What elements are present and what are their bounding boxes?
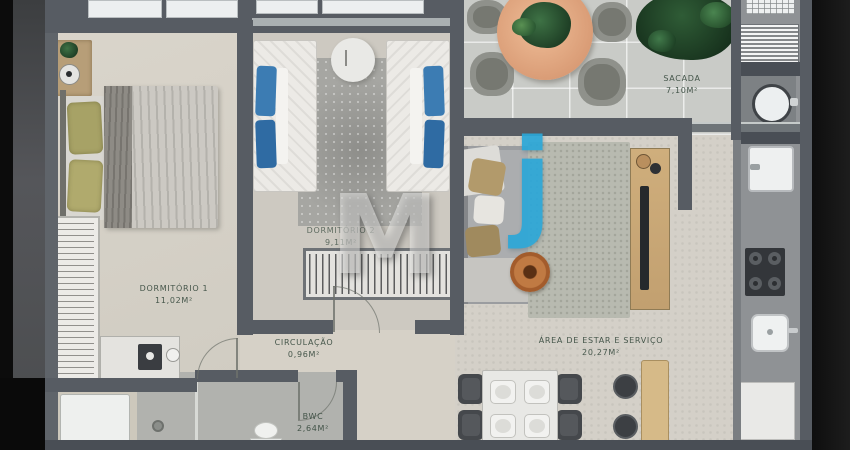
- burner-2: [768, 252, 781, 265]
- wall-dorm2-living: [450, 0, 464, 335]
- burner-4: [768, 277, 781, 290]
- bed-throw: [104, 86, 132, 228]
- room-name-estar-servico: ÁREA DE ESTAR E SERVIÇO: [539, 336, 664, 347]
- twin-left-pillow-blue-1: [255, 66, 277, 117]
- wall-balcony-service: [731, 0, 741, 140]
- room-area-estar-servico: 20,27m²: [582, 348, 620, 359]
- table-plant-leaf: [512, 18, 536, 36]
- place-setting-1: [490, 380, 516, 404]
- closet-dorm1-hangers: [56, 222, 94, 374]
- counter-edge-service: [733, 140, 741, 443]
- pillow-olive-2: [67, 159, 104, 213]
- room-area-dormitorio1: 11,02m²: [155, 296, 193, 307]
- nightstand-lamp-center: [66, 71, 72, 77]
- bench-wood: [641, 360, 669, 444]
- watermark-m-letter: M: [330, 180, 439, 290]
- wall-balcony-living: [455, 118, 690, 136]
- washing-machine-drum-icon: [752, 84, 792, 124]
- window-dorm2-a: [256, 0, 318, 14]
- burner-3: [749, 277, 762, 290]
- dining-chair-4: [556, 410, 582, 440]
- wall-dorm1-bottom: [45, 378, 197, 392]
- dining-chair-3: [556, 374, 582, 404]
- room-name-sacada: SACADA: [663, 74, 700, 85]
- big-plant-leaf-1: [700, 2, 734, 28]
- frame-black-corner: [0, 378, 45, 450]
- sofa-pillow-tan-2: [465, 224, 502, 257]
- room-name-bwc: BWC: [303, 412, 324, 423]
- side-table-rattan: [510, 252, 550, 292]
- twin-right-pillow-strip: [410, 68, 422, 164]
- watermark-j-letter: j: [512, 118, 552, 248]
- room-name-circulacao: CIRCULAÇÃO: [275, 338, 334, 349]
- big-plant-leaf-2: [648, 30, 676, 52]
- twin-left-pillow-blue-2: [255, 120, 277, 169]
- wall-dorm1-dorm2: [237, 20, 253, 335]
- sliding-door-balcony: [690, 122, 800, 132]
- room-label-dormitorio1: DORMITÓRIO 1 11,02m²: [140, 284, 209, 307]
- room-label-circulacao: CIRCULAÇÃO 0,96m²: [275, 338, 334, 361]
- entry-door-leaf: [60, 394, 130, 446]
- room-label-bwc: BWC 2,64m²: [297, 412, 329, 435]
- kitchen-counter-block: [739, 382, 795, 440]
- wall-pillar-living: [678, 118, 692, 210]
- wall-dorm2-hall-b: [415, 320, 453, 334]
- frame-black-right: [812, 0, 850, 450]
- tank-faucet-icon: [750, 164, 760, 170]
- console-vase-2: [650, 163, 661, 174]
- sofa-pillow-tan-1: [467, 157, 506, 196]
- wall-dorm2-hall-a: [253, 320, 333, 334]
- dresser-vase: [166, 348, 180, 362]
- place-setting-2: [524, 380, 550, 404]
- stool-1: [613, 374, 638, 399]
- door-leaf-dorm1: [236, 338, 238, 378]
- pillow-olive-1: [67, 101, 104, 155]
- room-name-dormitorio1: DORMITÓRIO 1: [140, 284, 209, 295]
- dining-chair-2: [458, 410, 484, 440]
- tv-icon: [640, 186, 649, 290]
- toilet-bowl-icon: [254, 422, 278, 439]
- twin-left-pillow-strip: [276, 68, 288, 164]
- room-area-sacada: 7,10m²: [666, 86, 698, 97]
- wall-bottom: [45, 440, 812, 450]
- window-dorm2-b: [322, 0, 424, 14]
- window-sill-dorm2: [252, 18, 452, 26]
- console-vase-1: [636, 154, 651, 169]
- round-table-mark: [345, 50, 347, 66]
- window-dorm1-b: [166, 0, 238, 18]
- twin-right-pillow-blue-1: [423, 66, 445, 117]
- wall-right: [800, 0, 812, 450]
- dresser-tv-dot: [146, 352, 154, 360]
- dining-chair-1: [458, 374, 484, 404]
- tv-console: [630, 148, 670, 310]
- stool-2: [613, 414, 638, 439]
- wall-bwc-right: [343, 370, 357, 450]
- drying-rack-grid: [746, 0, 794, 14]
- sofa-pillow-white: [473, 195, 505, 225]
- service-divider-2: [733, 130, 800, 144]
- slatted-rack: [737, 24, 799, 64]
- room-area-circulacao: 0,96m²: [288, 350, 320, 361]
- balcony-chair-4: [578, 58, 626, 106]
- shower-drain-icon: [152, 420, 164, 432]
- twin-right-pillow-blue-2: [423, 120, 445, 169]
- sink-drain: [767, 329, 773, 335]
- balcony-chair-2: [592, 2, 632, 42]
- burner-1: [749, 252, 762, 265]
- round-table-dorm2: [331, 38, 375, 82]
- window-dorm1-a: [88, 0, 162, 18]
- floorplan-render: DORMITÓRIO 1 11,02m² DORMITÓRIO 2 9,11m²…: [0, 0, 850, 450]
- nightstand-plant-icon: [60, 42, 78, 58]
- washer-latch: [790, 98, 798, 106]
- room-label-estar-servico: ÁREA DE ESTAR E SERVIÇO 20,27m²: [539, 336, 664, 359]
- room-area-bwc: 2,64m²: [297, 424, 329, 435]
- service-divider-1: [733, 62, 800, 76]
- sink-faucet-icon: [788, 328, 798, 333]
- place-setting-3: [490, 414, 516, 438]
- room-label-sacada: SACADA 7,10m²: [663, 74, 700, 97]
- place-setting-4: [524, 414, 550, 438]
